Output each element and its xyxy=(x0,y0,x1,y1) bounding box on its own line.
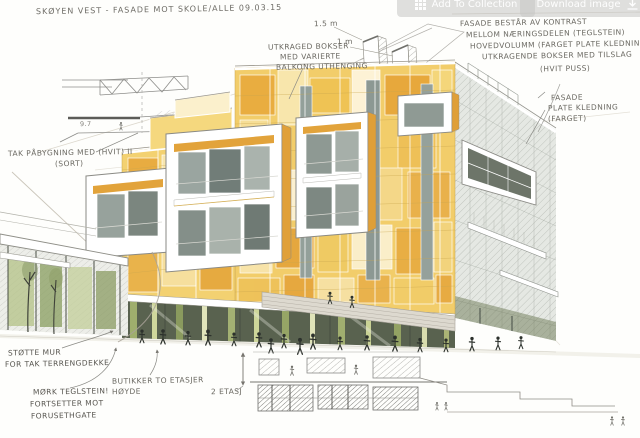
boxes-note-line: BALKONG UTHENGING xyxy=(276,62,368,72)
balcony-box-large xyxy=(166,124,291,272)
facade-note-line: (HVIT PUSS) xyxy=(540,65,590,74)
shops-note-line: HØYDE xyxy=(112,388,141,397)
bottom-section-sketch xyxy=(243,352,625,425)
floors-note: 2 ETASJ xyxy=(211,388,242,397)
brick-note-line: FORUSETHGATE xyxy=(31,411,97,420)
section-dimension-label: 9.7 xyxy=(80,121,92,128)
grid-icon xyxy=(415,0,426,10)
wall-note-line: STØTTE MUR xyxy=(8,349,61,358)
dimension-label: 1.5 m xyxy=(314,20,338,29)
dimension-label: 1 m xyxy=(337,38,353,47)
roof-note-line: (SORT) xyxy=(55,160,84,169)
add-to-collection-label: Add To Collection xyxy=(432,0,518,10)
download-image-label: Download image xyxy=(536,0,620,10)
plate-note-line: FASADE xyxy=(551,94,583,103)
add-to-collection-button[interactable]: Add To Collection xyxy=(397,0,535,17)
boxes-note-line: MED VARIERTE xyxy=(280,52,341,61)
plate-note-line: PLATE KLEDNING xyxy=(548,103,618,112)
building-side-facade xyxy=(455,62,558,341)
shops-note-line: BUTIKKER TO ETASJER xyxy=(112,376,204,386)
balcony-box-upper-right xyxy=(398,92,459,136)
brick-note-line: FORTSETTER MOT xyxy=(30,399,104,409)
brick-note-line: MØRK TEGLSTEIN! xyxy=(33,387,109,397)
balcony-box-mid xyxy=(296,112,376,238)
download-image-button[interactable]: Download image xyxy=(520,0,640,17)
download-icon xyxy=(627,0,638,10)
architectural-sketch-page: SKØYEN VEST - FASADE MOT SKOLE/ALLE 09.0… xyxy=(0,0,640,438)
balcony-box-small-left xyxy=(86,168,178,258)
plate-note-line: (FARGET) xyxy=(548,115,587,124)
